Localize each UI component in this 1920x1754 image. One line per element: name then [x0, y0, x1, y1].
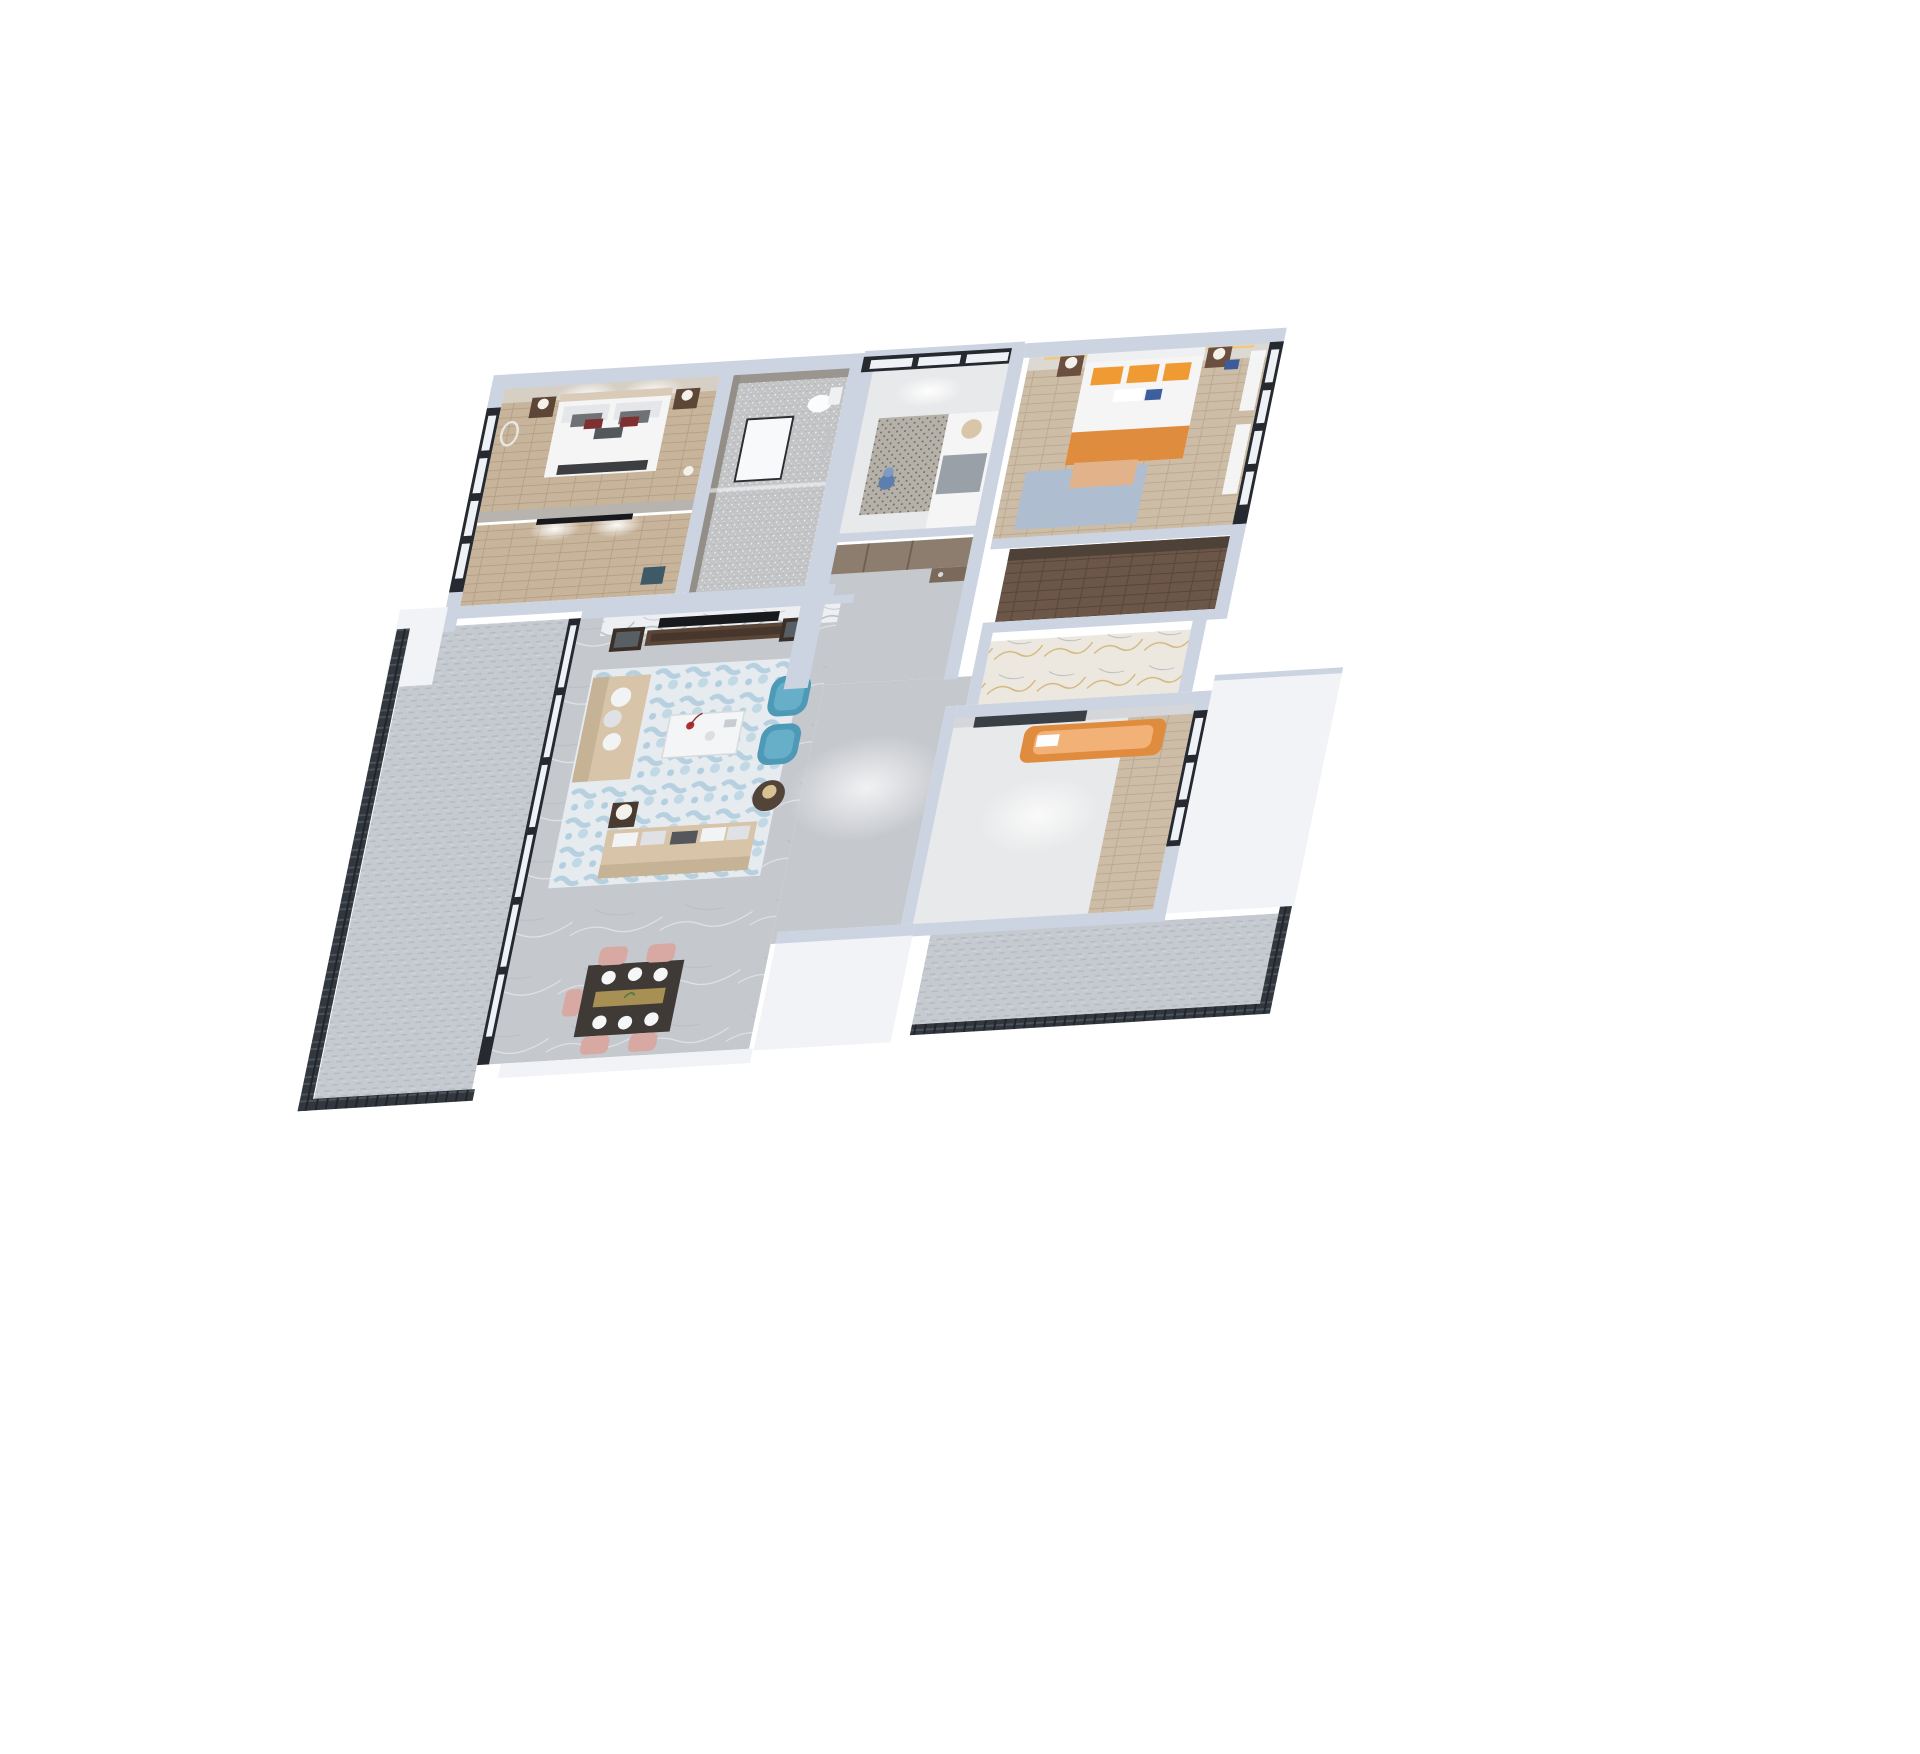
dark-cushion — [593, 427, 623, 439]
sofa-pillow — [700, 827, 727, 842]
accent-chair — [640, 566, 666, 585]
orange-pillow — [1126, 364, 1160, 383]
throw-drape — [1069, 459, 1138, 488]
orange-pillow — [1090, 366, 1124, 385]
daybed-blanket — [935, 453, 987, 494]
coffee-table — [662, 711, 745, 758]
orange-pillow — [1162, 362, 1192, 381]
render-stage — [0, 0, 1920, 1754]
blue-accent-cushion — [1144, 389, 1162, 401]
sofa-pillow — [726, 825, 751, 840]
sofa-pillow — [640, 830, 667, 845]
floorplan-render — [0, 0, 1920, 1754]
table-tray — [723, 719, 737, 727]
sofa-pillow — [612, 832, 639, 847]
red-accent-cushion — [619, 416, 639, 427]
blue-box — [1224, 359, 1240, 370]
white-pillow — [1112, 388, 1145, 402]
sofa-pillow-dark — [670, 831, 699, 845]
red-accent-cushion — [583, 419, 603, 430]
ensuite-floor — [978, 629, 1191, 704]
bed-pillow — [1035, 734, 1059, 747]
cabinet-glass — [613, 631, 640, 648]
